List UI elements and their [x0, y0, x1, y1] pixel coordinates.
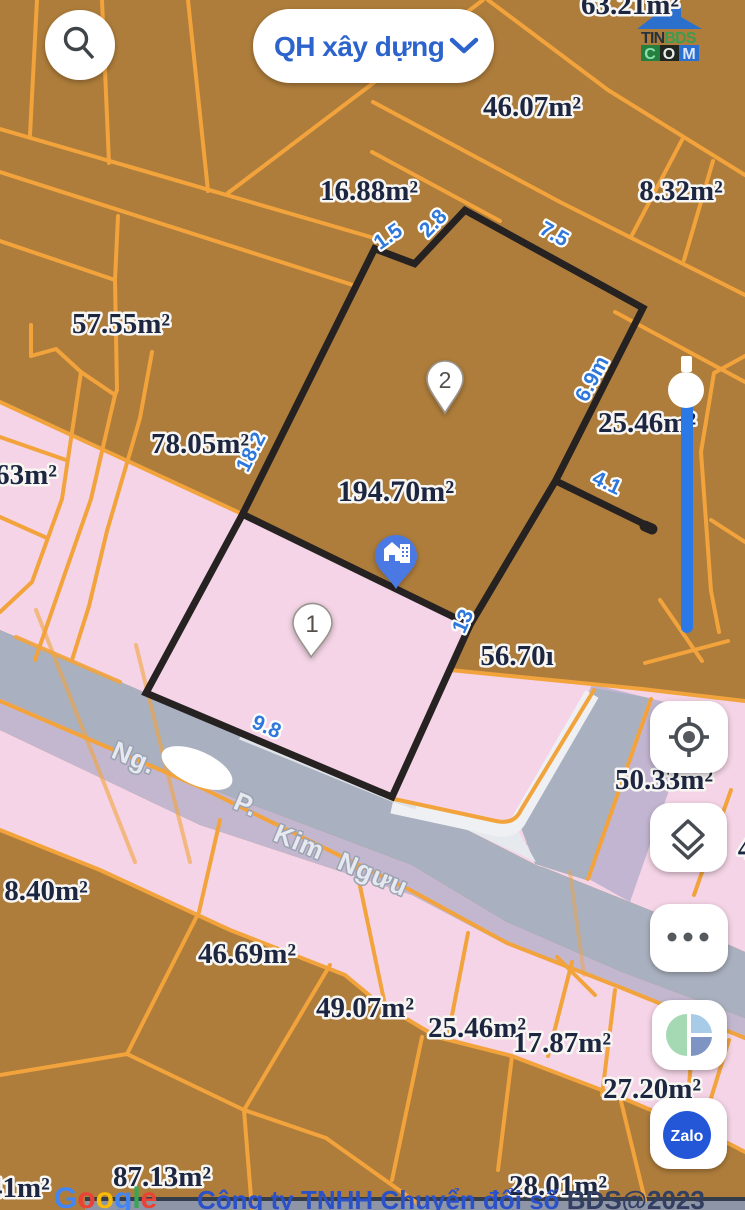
svg-text:M: M — [682, 46, 695, 63]
svg-text:Công ty TNHH Chuyển đổi số BDS: Công ty TNHH Chuyển đổi số BDS@2023 — [197, 1185, 705, 1210]
svg-text:17.87m²: 17.87m² — [513, 1027, 611, 1059]
svg-text:56.70ı: 56.70ı — [480, 640, 553, 672]
svg-text:46.69m²: 46.69m² — [198, 938, 296, 970]
svg-text:1: 1 — [305, 611, 318, 638]
svg-text:C: C — [644, 46, 656, 63]
svg-text:TINBDS: TINBDS — [641, 30, 697, 47]
svg-text:2: 2 — [439, 367, 452, 393]
svg-text:8.40m²: 8.40m² — [4, 875, 88, 907]
svg-text:16.88m²: 16.88m² — [320, 175, 418, 207]
svg-text:78.05m²: 78.05m² — [151, 428, 249, 460]
svg-text:Zalo: Zalo — [671, 1128, 704, 1145]
svg-text:Google: Google — [54, 1182, 157, 1210]
svg-text:57.55m²: 57.55m² — [72, 308, 170, 340]
svg-text:46.07m²: 46.07m² — [483, 91, 581, 123]
svg-text:63m²: 63m² — [0, 459, 57, 491]
svg-text:63.21m²: 63.21m² — [581, 0, 679, 21]
svg-text:8.32m²: 8.32m² — [639, 175, 723, 207]
svg-text:25.46m²: 25.46m² — [428, 1012, 526, 1044]
svg-text:4: 4 — [738, 833, 745, 865]
svg-text:49.07m²: 49.07m² — [316, 992, 414, 1024]
svg-text:41m²: 41m² — [0, 1172, 50, 1204]
svg-text:194.70m²: 194.70m² — [338, 475, 454, 508]
svg-text:QH xây dựng: QH xây dựng — [274, 31, 444, 62]
svg-text:O: O — [663, 46, 675, 63]
